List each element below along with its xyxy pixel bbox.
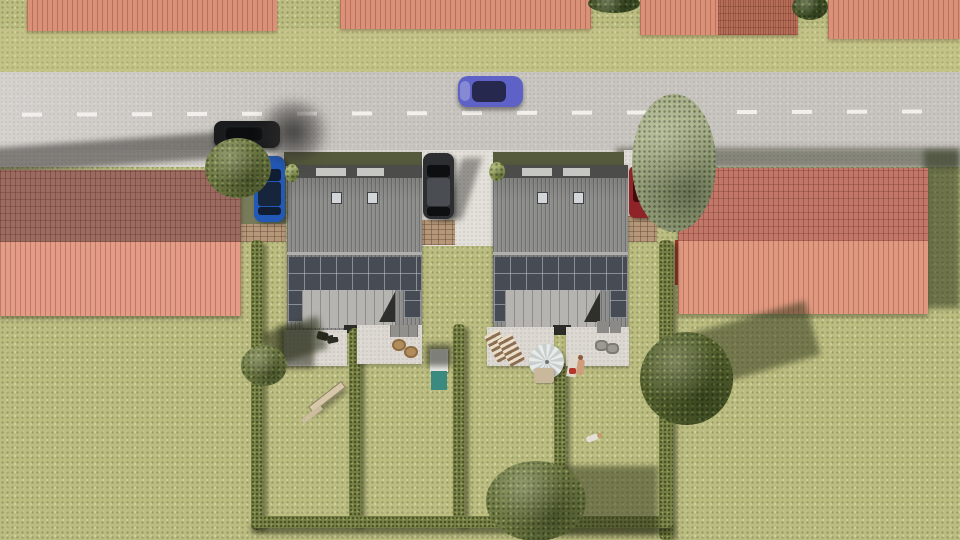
shaded-grass-right-edge xyxy=(924,150,960,308)
top-right-building-dark-slope xyxy=(718,0,798,35)
house-2-solar-array xyxy=(494,257,627,291)
house-2-ridge-vent-2 xyxy=(563,168,590,176)
driving-car-hood-highlight xyxy=(460,81,470,101)
tree-shadow-playhouse xyxy=(426,344,452,366)
house-1-ridge-vent-2 xyxy=(357,168,384,176)
paver-apron-left xyxy=(239,224,286,242)
gray-suv-rear-window xyxy=(427,207,450,216)
patio-canopy xyxy=(390,325,418,337)
hedge-center xyxy=(453,324,465,528)
house-1-extension-shadow xyxy=(379,292,395,322)
playhouse-slide xyxy=(431,371,447,390)
paver-apron-center xyxy=(417,220,455,245)
gray-suv-roof xyxy=(427,178,450,206)
house-1 xyxy=(287,165,422,330)
street-tree xyxy=(205,138,271,198)
red-bag xyxy=(569,368,576,374)
wicker-chair-2 xyxy=(404,346,418,358)
house-1-solar-array xyxy=(288,257,421,291)
garden-tree-right xyxy=(640,332,733,425)
house-1-roof-edge xyxy=(287,165,422,178)
house-2-skylight-1 xyxy=(537,192,548,204)
right-apartment-roof-north xyxy=(678,168,928,241)
gray-chair-2 xyxy=(606,343,619,354)
top-center-building-roof xyxy=(340,0,591,29)
garden-tree-left xyxy=(241,345,287,386)
right-apartment-block xyxy=(678,168,928,314)
sunbathing-person-head xyxy=(578,355,583,360)
aerial-render xyxy=(0,0,960,540)
top-left-building-roof xyxy=(27,0,277,31)
house-1-solar-right-column xyxy=(404,291,421,318)
house-2-extension-shadow xyxy=(584,292,600,322)
driving-car-cabin xyxy=(472,81,506,102)
patio-side-table xyxy=(333,333,339,337)
blue-hatchback-rear-window xyxy=(258,207,281,215)
bush-house-2 xyxy=(489,162,505,181)
house-2-rear-border xyxy=(491,152,630,166)
house-2-ridge-vent-1 xyxy=(522,168,552,176)
house-2-roof-edge xyxy=(493,165,628,178)
left-apartment-roof-south xyxy=(0,242,241,316)
house-2-roof-north-slope xyxy=(493,178,628,254)
house-1-solar-left-column xyxy=(288,291,303,322)
left-apartment-roof-north xyxy=(0,170,241,242)
gray-suv xyxy=(423,153,454,219)
driving-car xyxy=(458,76,523,107)
gray-suv-windshield xyxy=(427,165,450,177)
garden-table xyxy=(534,368,554,383)
bush-house-1 xyxy=(285,164,299,182)
top-far-right-building-roof xyxy=(828,0,960,39)
house-1-skylight-1 xyxy=(331,192,342,204)
house-1-roof-north-slope xyxy=(287,178,422,254)
house-2-solar-right-column xyxy=(610,291,627,318)
bottom-tree xyxy=(486,461,586,540)
house-1-skylight-2 xyxy=(367,192,378,204)
storage-box-2 xyxy=(610,321,621,333)
grass-strip-north xyxy=(0,28,960,72)
storage-box-1 xyxy=(597,321,609,333)
corner-tree-sage xyxy=(632,94,716,232)
house-2 xyxy=(493,165,628,330)
house-2-skylight-2 xyxy=(573,192,584,204)
left-apartment-block xyxy=(0,170,241,316)
person-on-grass-head xyxy=(597,433,602,438)
house-1-ridge-vent-1 xyxy=(316,168,346,176)
